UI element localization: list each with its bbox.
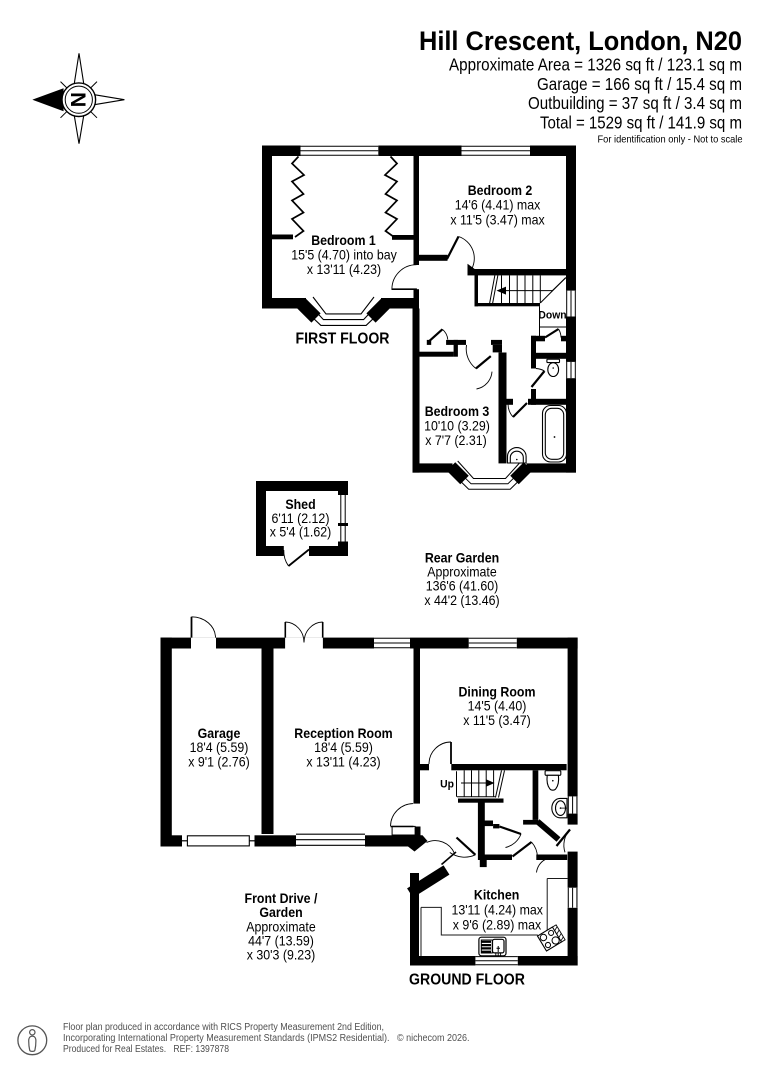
svg-text:14'5 (4.40): 14'5 (4.40) xyxy=(468,699,527,714)
svg-text:Front Drive /: Front Drive / xyxy=(245,891,318,906)
svg-text:Floor plan produced in accorda: Floor plan produced in accordance with R… xyxy=(63,1022,384,1033)
svg-text:Dining Room: Dining Room xyxy=(459,684,536,699)
svg-text:44'7 (13.59): 44'7 (13.59) xyxy=(248,933,314,948)
svg-text:Up: Up xyxy=(440,778,454,790)
svg-text:Shed: Shed xyxy=(285,497,315,512)
svg-text:136'6 (41.60): 136'6 (41.60) xyxy=(426,579,499,594)
svg-text:Incorporating International Pr: Incorporating International Property Mea… xyxy=(63,1033,470,1044)
svg-text:Reception Room: Reception Room xyxy=(294,726,392,741)
svg-text:Garage = 166 sq ft / 15.4 sq m: Garage = 166 sq ft / 15.4 sq m xyxy=(537,74,742,94)
svg-text:x 11'5 (3.47): x 11'5 (3.47) xyxy=(463,713,531,728)
svg-text:Hill Crescent, London, N20: Hill Crescent, London, N20 xyxy=(419,26,742,56)
svg-text:x 11'5 (3.47) max: x 11'5 (3.47) max xyxy=(450,212,544,227)
svg-text:x 44'2 (13.46): x 44'2 (13.46) xyxy=(424,593,499,608)
svg-text:Bedroom 2: Bedroom 2 xyxy=(468,183,533,198)
svg-text:Total = 1529 sq ft / 141.9 sq: Total = 1529 sq ft / 141.9 sq m xyxy=(540,112,742,132)
svg-text:Garage: Garage xyxy=(198,726,241,741)
svg-text:x 13'11 (4.23): x 13'11 (4.23) xyxy=(306,754,380,769)
svg-text:x 9'1 (2.76): x 9'1 (2.76) xyxy=(188,754,250,769)
svg-text:Approximate: Approximate xyxy=(246,919,316,934)
svg-text:Kitchen: Kitchen xyxy=(474,888,519,903)
svg-text:x 5'4 (1.62): x 5'4 (1.62) xyxy=(270,524,332,539)
svg-text:x 9'6 (2.89) max: x 9'6 (2.89) max xyxy=(453,918,542,933)
svg-text:13'11 (4.24) max: 13'11 (4.24) max xyxy=(451,903,543,918)
svg-text:N: N xyxy=(67,92,90,107)
svg-text:For identification only - Not: For identification only - Not to scale xyxy=(598,135,743,146)
svg-text:Rear Garden: Rear Garden xyxy=(425,550,499,565)
svg-text:FIRST FLOOR: FIRST FLOOR xyxy=(296,331,390,348)
svg-text:Garden: Garden xyxy=(259,905,302,920)
svg-text:14'6 (4.41) max: 14'6 (4.41) max xyxy=(455,198,541,213)
svg-text:GROUND FLOOR: GROUND FLOOR xyxy=(409,972,525,989)
svg-text:Approximate: Approximate xyxy=(427,565,497,580)
svg-text:10'10 (3.29): 10'10 (3.29) xyxy=(424,419,490,434)
svg-text:15'5 (4.70) into bay: 15'5 (4.70) into bay xyxy=(291,247,397,262)
svg-text:Bedroom 1: Bedroom 1 xyxy=(311,233,376,248)
svg-text:x 30'3 (9.23): x 30'3 (9.23) xyxy=(247,948,315,963)
svg-text:Approximate Area = 1326 sq ft: Approximate Area = 1326 sq ft / 123.1 sq… xyxy=(449,55,742,75)
svg-text:x 7'7 (2.31): x 7'7 (2.31) xyxy=(425,433,487,448)
svg-text:Down: Down xyxy=(538,310,566,322)
svg-text:18'4 (5.59): 18'4 (5.59) xyxy=(314,740,373,755)
svg-text:Produced for Real Estates. R: Produced for Real Estates. REF: 1397878 xyxy=(63,1044,229,1055)
svg-text:Bedroom 3: Bedroom 3 xyxy=(425,404,490,419)
svg-text:x 13'11 (4.23): x 13'11 (4.23) xyxy=(307,262,381,277)
svg-text:18'4 (5.59): 18'4 (5.59) xyxy=(190,740,249,755)
svg-text:Outbuilding = 37 sq ft / 3.4 s: Outbuilding = 37 sq ft / 3.4 sq m xyxy=(528,93,742,113)
